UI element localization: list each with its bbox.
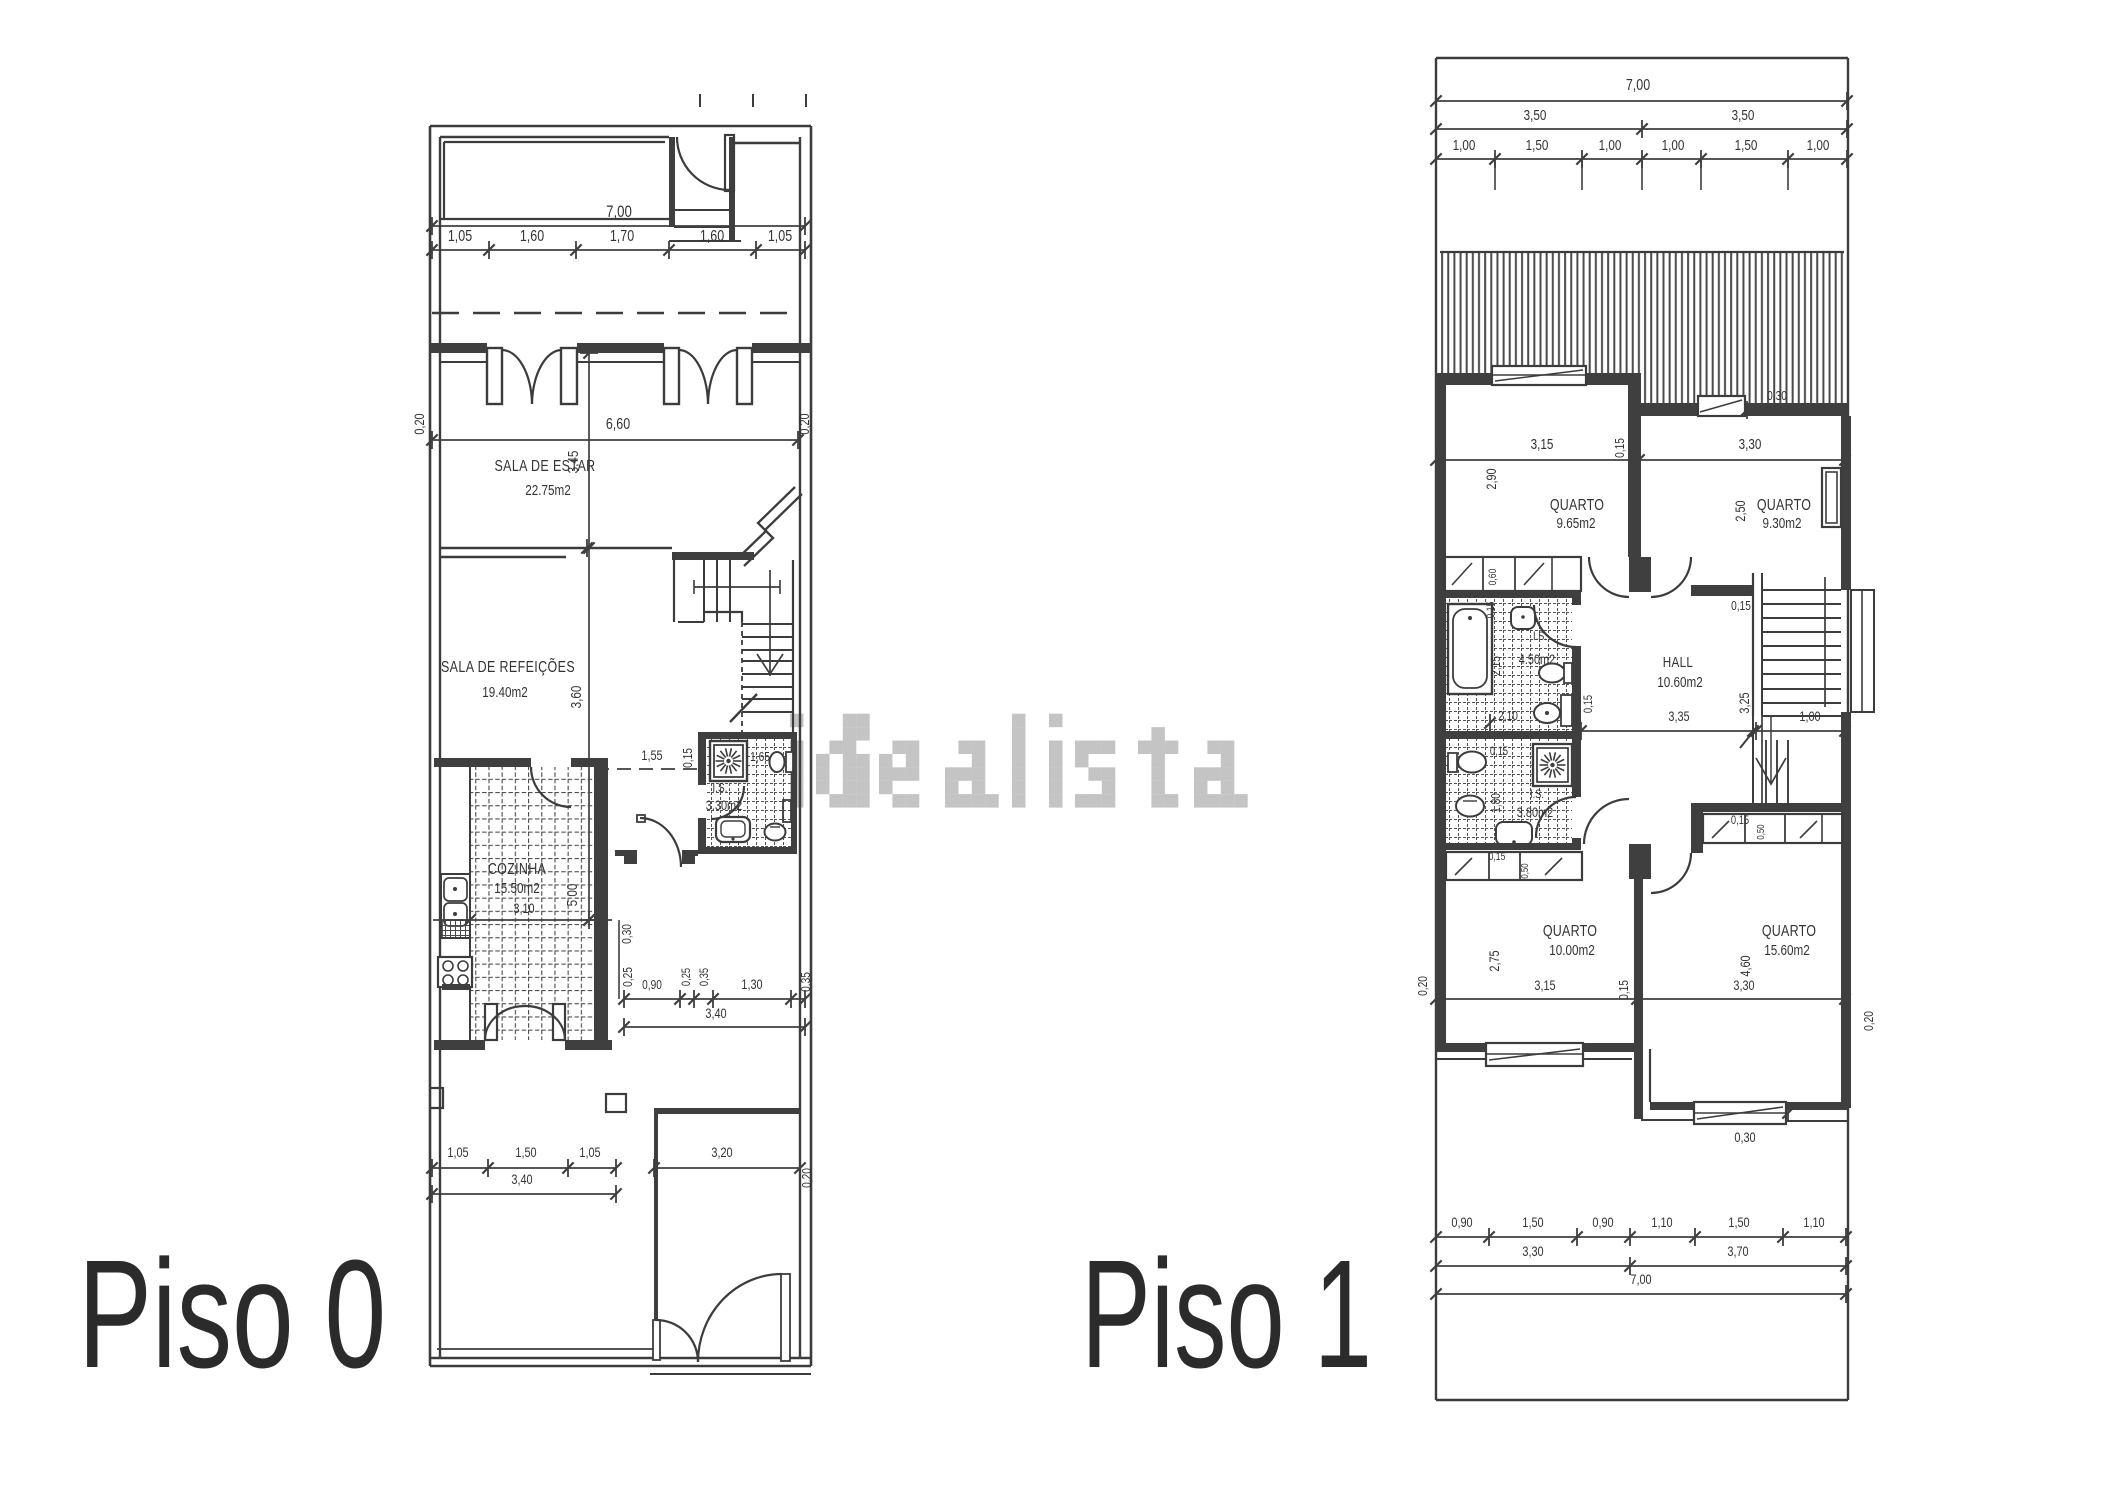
svg-text:QUARTO: QUARTO bbox=[1543, 923, 1597, 941]
svg-text:1,80: 1,80 bbox=[1489, 793, 1503, 813]
svg-text:1,60: 1,60 bbox=[700, 228, 724, 246]
svg-text:0,20: 0,20 bbox=[797, 413, 813, 434]
svg-text:4,60: 4,60 bbox=[1738, 955, 1754, 976]
svg-text:1,05: 1,05 bbox=[579, 1145, 600, 1161]
svg-text:10.00m2: 10.00m2 bbox=[1549, 942, 1594, 959]
svg-text:19.40m2: 19.40m2 bbox=[482, 684, 527, 701]
svg-text:9.65m2: 9.65m2 bbox=[1557, 515, 1596, 532]
svg-text:SALA DE REFEIÇÕES: SALA DE REFEIÇÕES bbox=[441, 658, 575, 677]
svg-text:0,20: 0,20 bbox=[1416, 976, 1430, 996]
svg-text:0,35: 0,35 bbox=[698, 968, 711, 986]
svg-text:I.S.: I.S. bbox=[712, 781, 727, 795]
svg-text:0,20: 0,20 bbox=[412, 413, 428, 434]
svg-text:3,50: 3,50 bbox=[1732, 107, 1755, 124]
svg-text:3,25: 3,25 bbox=[1737, 692, 1753, 713]
svg-text:1,00: 1,00 bbox=[1453, 137, 1476, 154]
svg-text:COZINHA: COZINHA bbox=[488, 861, 546, 879]
svg-text:3,30: 3,30 bbox=[1522, 1244, 1543, 1260]
svg-text:3,60: 3,60 bbox=[568, 686, 585, 709]
svg-text:1,00: 1,00 bbox=[1807, 137, 1830, 154]
svg-text:15.50m2: 15.50m2 bbox=[494, 880, 539, 897]
svg-text:3,40: 3,40 bbox=[511, 1172, 532, 1188]
svg-text:1,60: 1,60 bbox=[520, 228, 544, 246]
svg-text:1,50: 1,50 bbox=[1728, 1215, 1749, 1231]
svg-text:3.30m2: 3.30m2 bbox=[706, 798, 742, 814]
svg-text:2,15: 2,15 bbox=[1489, 656, 1503, 676]
svg-text:0,30: 0,30 bbox=[1734, 1130, 1755, 1146]
svg-text:1,50: 1,50 bbox=[1522, 1215, 1543, 1231]
svg-text:0,15: 0,15 bbox=[1617, 980, 1631, 1000]
svg-text:0,20: 0,20 bbox=[800, 1168, 814, 1188]
svg-text:15.60m2: 15.60m2 bbox=[1764, 942, 1809, 959]
svg-text:0,15: 0,15 bbox=[1731, 814, 1749, 827]
svg-text:1,00: 1,00 bbox=[1599, 137, 1622, 154]
svg-text:2,90: 2,90 bbox=[1484, 468, 1500, 489]
svg-text:9.30m2: 9.30m2 bbox=[1763, 515, 1802, 532]
svg-text:0,90: 0,90 bbox=[1592, 1215, 1613, 1231]
svg-text:Piso 0: Piso 0 bbox=[78, 1229, 386, 1400]
svg-text:0,50: 0,50 bbox=[1755, 824, 1766, 839]
svg-text:3,35: 3,35 bbox=[1668, 709, 1689, 725]
svg-text:10.60m2: 10.60m2 bbox=[1657, 674, 1702, 691]
svg-text:3,10: 3,10 bbox=[513, 901, 534, 917]
svg-text:0,15: 0,15 bbox=[681, 748, 695, 768]
svg-text:7,00: 7,00 bbox=[1630, 1272, 1651, 1288]
svg-text:1,50: 1,50 bbox=[1526, 137, 1549, 154]
svg-text:7,00: 7,00 bbox=[606, 203, 632, 222]
svg-text:0,90: 0,90 bbox=[642, 978, 662, 992]
svg-text:QUARTO: QUARTO bbox=[1757, 497, 1811, 515]
svg-text:3,15: 3,15 bbox=[1531, 436, 1554, 453]
svg-text:3,30: 3,30 bbox=[1733, 978, 1754, 994]
svg-text:0,50: 0,50 bbox=[1519, 863, 1530, 878]
svg-text:0,35: 0,35 bbox=[799, 972, 813, 992]
svg-text:6,60: 6,60 bbox=[606, 416, 630, 434]
svg-text:QUARTO: QUARTO bbox=[1762, 923, 1816, 941]
svg-text:3,70: 3,70 bbox=[1727, 1244, 1748, 1260]
svg-text:0,30: 0,30 bbox=[620, 924, 634, 944]
svg-text:1,55: 1,55 bbox=[641, 748, 662, 764]
svg-text:2,50: 2,50 bbox=[1733, 500, 1749, 521]
svg-text:1,70: 1,70 bbox=[610, 228, 634, 246]
svg-text:1,05: 1,05 bbox=[448, 228, 472, 246]
svg-text:1,50: 1,50 bbox=[515, 1145, 536, 1161]
svg-text:1,05: 1,05 bbox=[768, 228, 792, 246]
svg-text:0,15: 0,15 bbox=[1489, 851, 1506, 863]
svg-text:1,50: 1,50 bbox=[1735, 137, 1758, 154]
svg-text:1,30: 1,30 bbox=[741, 977, 762, 993]
svg-text:QUARTO: QUARTO bbox=[1550, 497, 1604, 515]
svg-text:I.S.: I.S. bbox=[1530, 788, 1544, 801]
svg-text:7,00: 7,00 bbox=[1626, 77, 1650, 95]
svg-text:0,15: 0,15 bbox=[1731, 599, 1751, 613]
svg-text:3,15: 3,15 bbox=[1534, 978, 1555, 994]
svg-text:0,15: 0,15 bbox=[1582, 695, 1595, 713]
svg-text:1,10: 1,10 bbox=[1803, 1215, 1824, 1231]
svg-text:1,05: 1,05 bbox=[447, 1145, 468, 1161]
svg-text:HALL: HALL bbox=[1663, 654, 1694, 671]
svg-text:3,30: 3,30 bbox=[1739, 436, 1762, 453]
svg-text:1,00: 1,00 bbox=[1662, 137, 1685, 154]
svg-text:SALA DE ESTAR: SALA DE ESTAR bbox=[494, 458, 595, 476]
svg-text:0,25: 0,25 bbox=[621, 967, 635, 987]
svg-text:22.75m2: 22.75m2 bbox=[525, 482, 570, 499]
svg-text:2,75: 2,75 bbox=[1487, 950, 1503, 971]
svg-text:0,30: 0,30 bbox=[1767, 389, 1787, 403]
svg-text:0,90: 0,90 bbox=[1451, 1215, 1472, 1231]
svg-text:0,20: 0,20 bbox=[1862, 1011, 1876, 1031]
svg-text:0,15: 0,15 bbox=[1490, 745, 1508, 758]
svg-text:3.80m2: 3.80m2 bbox=[1517, 805, 1553, 821]
svg-text:0,15: 0,15 bbox=[1613, 438, 1627, 458]
svg-text:0,60: 0,60 bbox=[1487, 568, 1499, 585]
svg-text:Piso 1: Piso 1 bbox=[1081, 1228, 1372, 1400]
svg-text:1,65: 1,65 bbox=[750, 750, 770, 764]
svg-text:3,50: 3,50 bbox=[1524, 107, 1547, 124]
svg-text:3,20: 3,20 bbox=[711, 1145, 732, 1161]
svg-text:0,15: 0,15 bbox=[1485, 601, 1497, 618]
svg-text:1,10: 1,10 bbox=[1651, 1215, 1672, 1231]
svg-text:0,25: 0,25 bbox=[680, 968, 693, 986]
svg-text:3,40: 3,40 bbox=[705, 1006, 726, 1022]
svg-text:2,10: 2,10 bbox=[1498, 709, 1518, 723]
